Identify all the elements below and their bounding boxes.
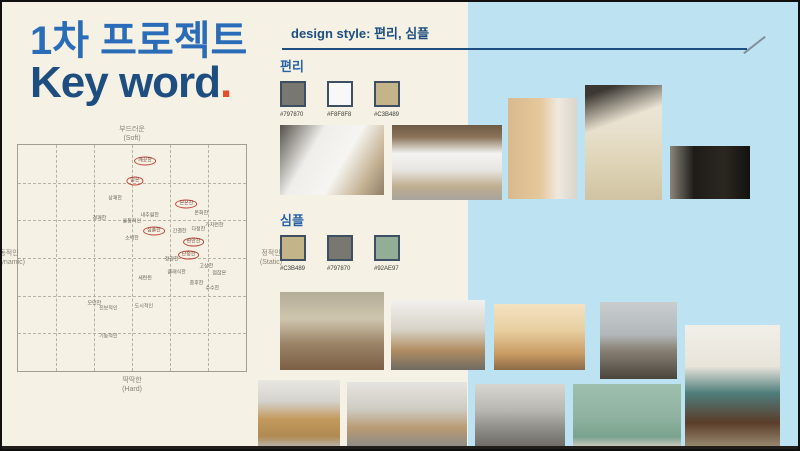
slide: 1차 프로젝트 Key word. design style: 편리, 심플 편… [0,0,800,451]
photo-booth-arch-seating [280,292,384,370]
map-keyword: 정갈한 [165,258,179,263]
photo-bathroom-wood-vanity [685,325,780,447]
map-keyword: 점잖은 [212,271,226,276]
color-swatch-box [327,235,353,261]
swatch-row: #C3B489#797870#92AE97 [280,235,401,272]
map-keyword: 중후한 [190,281,204,286]
color-swatch-hex-label: #F8F8F8 [327,112,354,118]
color-swatch-hex-label: #797870 [280,112,307,118]
palette-section-simple: 심플 #C3B489#797870#92AE97 [280,210,401,272]
photo-wood-wall-plant [508,98,577,199]
map-keyword: 가지런한 [205,224,223,229]
photo-office-tables [347,382,467,446]
map-keyword: 경쾌한 [92,217,106,222]
photo-restroom-urinals [600,302,677,379]
map-keyword-circled: 은은한 [176,199,198,208]
color-swatch-box [280,81,306,107]
bottom-edge-bar [2,446,800,451]
photo-warm-dining-room [494,304,585,370]
map-keyword: 진보적인 [99,306,117,311]
photo-grid-partition-dining [391,300,485,370]
slide-title-keyword-text: Key word [30,58,220,107]
image-scale-map: 깨끗한맑은상쾌한은은한온화한경쾌한내추럴한율동적인가지런한심플한간결한다정한소박… [17,144,247,372]
slide-title-period: . [220,58,231,107]
map-keyword: 수수한 [205,286,219,291]
photo-white-restaurant [392,125,502,200]
map-keyword: 온화한 [194,212,208,217]
photo-concrete-cafeteria [475,384,565,446]
heading-underline [282,48,747,50]
color-swatch-hex-label: #C3B489 [374,112,401,118]
map-axis-hard-ko: 딱딱한 [122,377,141,384]
map-keyword: 도시적인 [135,304,153,309]
map-keyword-circled: 단정한 [178,251,200,260]
map-axis-dynamic-en: (Dynamic) [0,259,25,266]
map-axis-static-ko: 정적인 [261,250,280,257]
map-keyword-circled: 맑은 [126,176,143,185]
color-swatch: #797870 [327,235,354,272]
map-gridline-horizontal [18,258,246,259]
color-swatch-hex-label: #92AE97 [374,266,401,272]
map-keyword: 세련된 [138,276,152,281]
photo-wood-reception-counter [258,380,340,447]
color-swatch-box [280,235,306,261]
map-axis-dynamic: 동적인 (Dynamic) [0,249,32,267]
map-gridline-horizontal [18,333,246,334]
color-swatch: #C3B489 [374,81,401,118]
slide-title-keyword: Key word. [30,58,231,108]
map-keyword: 다정한 [191,228,205,233]
color-swatch: #F8F8F8 [327,81,354,118]
color-swatch-box [327,81,353,107]
palette-section-label: 심플 [280,210,401,229]
map-keyword-circled: 편안한 [183,238,205,247]
photo-cafe-bench-interior [280,125,384,195]
color-swatch-hex-label: #C3B489 [280,266,307,272]
map-axis-soft-en: (Soft) [123,135,140,142]
map-keyword: 간결한 [173,230,187,235]
map-keyword: 내추럴한 [141,214,159,219]
map-keyword: 기능적인 [99,335,117,340]
map-keyword-circled: 깨끗한 [134,156,156,165]
map-keyword: 율동적인 [123,220,141,225]
swatch-row: #797870#F8F8F8#C3B489 [280,81,401,118]
map-keyword: 소박한 [125,237,139,242]
map-axis-hard-en: (Hard) [122,386,142,393]
color-swatch: #C3B489 [280,235,307,272]
map-gridline-vertical [208,145,209,371]
map-axis-soft: 부드러운 (Soft) [94,125,170,143]
map-axis-soft-ko: 부드러운 [119,126,145,133]
photo-green-tile-restroom [573,384,681,447]
photo-dark-corridor [670,146,750,199]
map-keyword: 고상한 [199,264,213,269]
map-axis-dynamic-ko: 동적인 [0,250,19,257]
map-axis-hard: 딱딱한 (Hard) [94,376,170,394]
map-keyword: 클래식한 [167,270,185,275]
palette-section-label: 편리 [280,56,401,75]
map-keyword: 상쾌한 [108,196,122,201]
palette-section-convenient: 편리 #797870#F8F8F8#C3B489 [280,56,401,118]
photo-store-ceiling-beams [585,85,662,200]
map-gridline-horizontal [18,296,246,297]
map-axis-static-en: (Static) [260,259,282,266]
color-swatch: #92AE97 [374,235,401,272]
color-swatch-box [374,235,400,261]
map-keyword-circled: 심플한 [143,227,165,236]
color-swatch: #797870 [280,81,307,118]
color-swatch-box [374,81,400,107]
color-swatch-hex-label: #797870 [327,266,354,272]
design-style-heading: design style: 편리, 심플 [291,23,429,42]
